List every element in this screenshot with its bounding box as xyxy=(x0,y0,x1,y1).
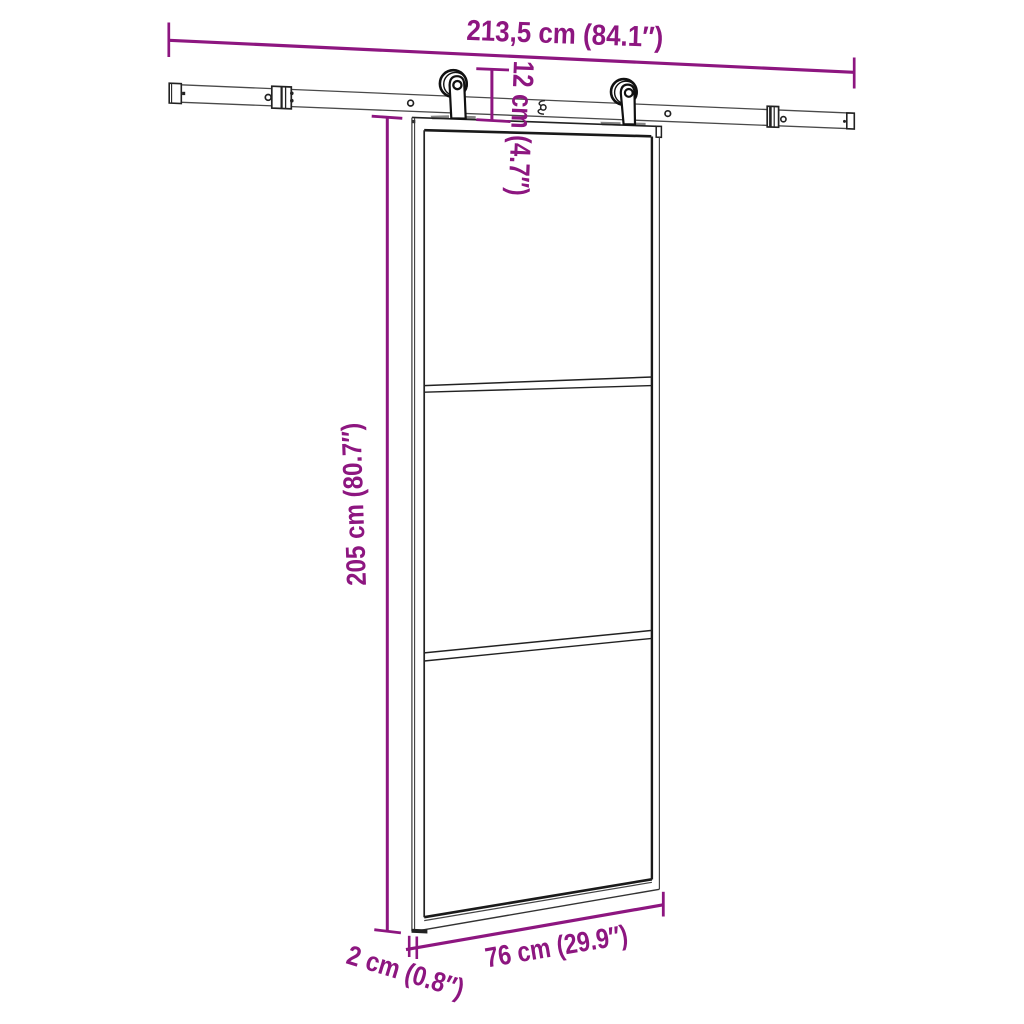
svg-text:12 cm (4.7″): 12 cm (4.7″) xyxy=(502,60,539,196)
svg-text:205 cm (80.7″): 205 cm (80.7″) xyxy=(335,422,372,586)
